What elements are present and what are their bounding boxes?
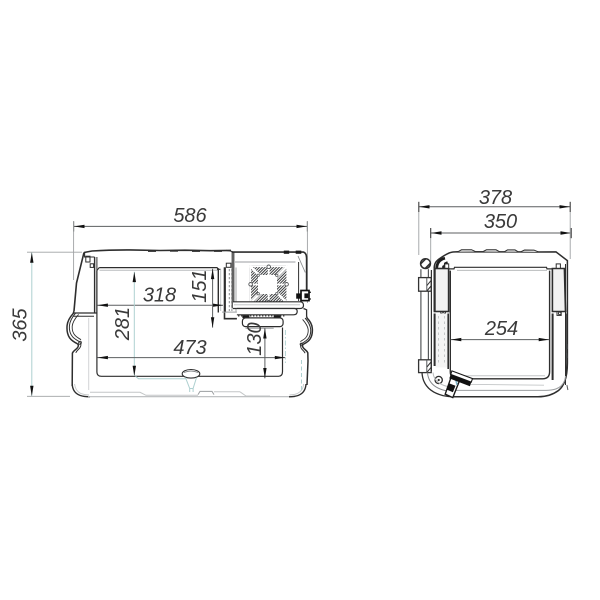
svg-text:281: 281 bbox=[112, 307, 134, 341]
svg-text:350: 350 bbox=[484, 211, 517, 233]
svg-text:318: 318 bbox=[143, 285, 176, 307]
svg-text:586: 586 bbox=[173, 205, 207, 227]
svg-text:254: 254 bbox=[484, 318, 518, 340]
svg-text:151: 151 bbox=[189, 269, 211, 302]
svg-text:378: 378 bbox=[479, 187, 512, 209]
svg-text:130: 130 bbox=[244, 322, 266, 355]
svg-text:365: 365 bbox=[10, 307, 32, 341]
svg-text:473: 473 bbox=[173, 337, 206, 359]
